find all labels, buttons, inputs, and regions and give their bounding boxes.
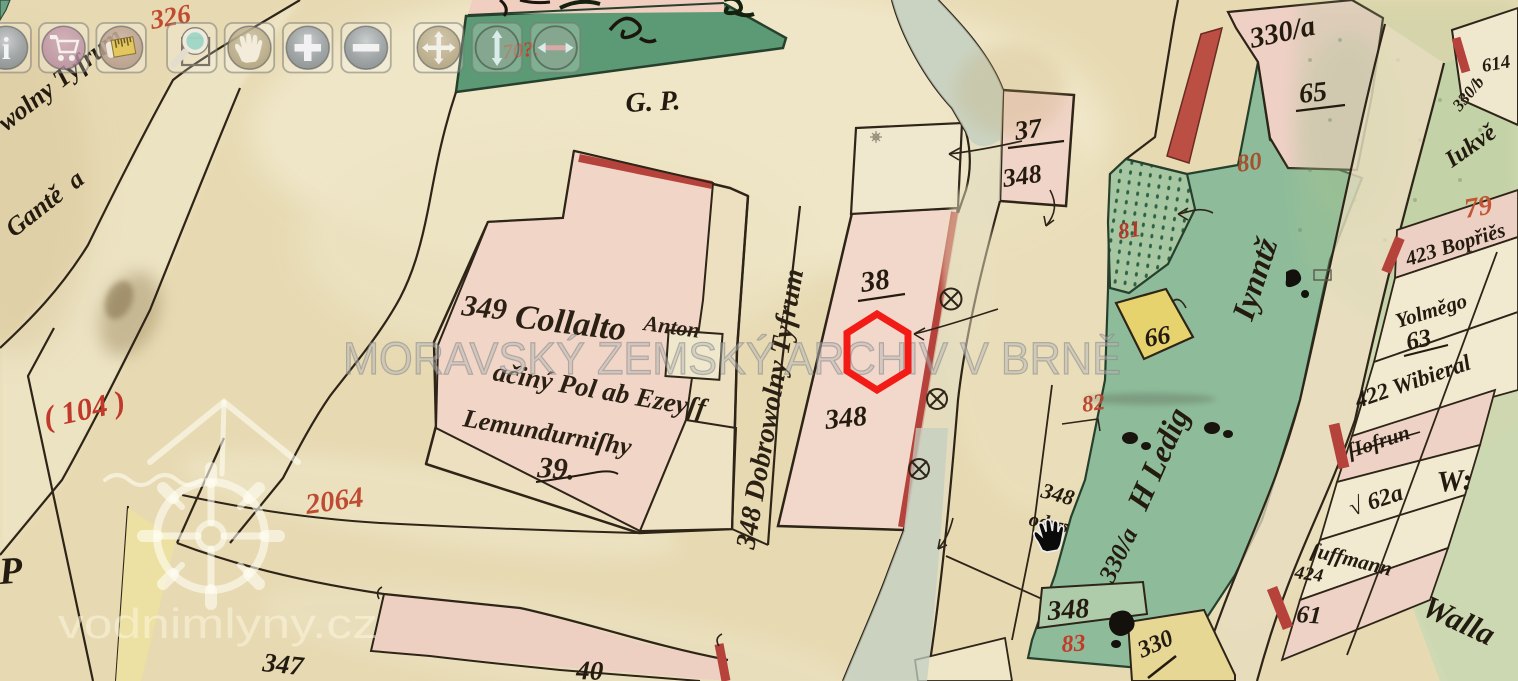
svg-text:38: 38 [858,263,893,299]
svg-text:81: 81 [1116,216,1142,244]
svg-text:W:: W: [1436,463,1474,499]
svg-text:65: 65 [1297,76,1328,110]
svg-text:P: P [0,549,25,593]
svg-text:vodnimlyny.cz: vodnimlyny.cz [58,600,378,647]
svg-text:MORAVSKÝ ZEMSKÝ ARCHIV V BRNĚ: MORAVSKÝ ZEMSKÝ ARCHIV V BRNĚ [343,333,1121,384]
svg-text:G. P.: G. P. [625,85,681,119]
svg-text:37: 37 [1012,112,1045,146]
svg-text:66: 66 [1142,320,1173,353]
svg-text:349: 349 [459,289,508,327]
svg-text:79: 79 [1462,190,1495,225]
svg-text:80: 80 [1235,148,1264,178]
svg-text:424: 424 [1292,562,1324,587]
svg-text:61: 61 [1296,601,1323,630]
svg-text:347: 347 [260,647,306,681]
svg-text:348: 348 [822,401,868,436]
svg-text:348: 348 [1000,159,1044,193]
svg-text:348: 348 [1045,593,1090,627]
svg-text:40: 40 [575,655,605,681]
svg-text:i: i [2,30,11,66]
svg-text:83: 83 [1061,630,1087,658]
